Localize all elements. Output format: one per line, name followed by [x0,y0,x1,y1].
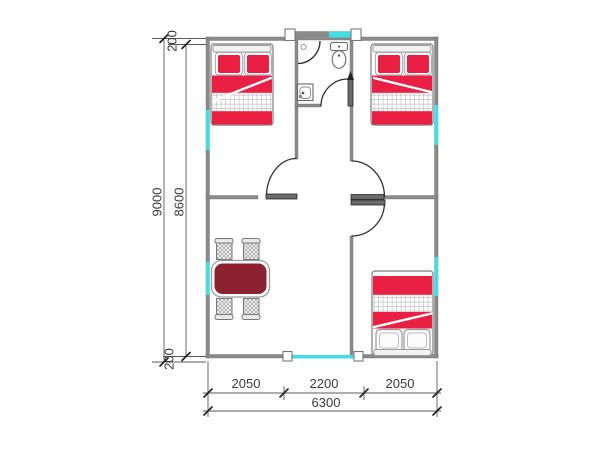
bed-bedroom1 [211,44,273,125]
bed-bedroom2 [371,44,433,125]
dining-set [212,239,270,320]
shower-head-icon [301,44,306,49]
chair-bottom-right [242,299,260,320]
chair-backrest [242,315,260,320]
sliding-door-bottom [292,355,354,359]
bed-sheet-band [372,93,432,111]
wall-bottom-left [206,355,283,359]
door-swing-arc [352,161,385,197]
door-swing-arc [267,159,297,197]
pillow-inner [378,55,400,73]
door-swing-arc [321,79,348,106]
dim-label-total-width: 6300 [312,395,341,410]
toilet-bowl-icon [332,51,346,69]
headboard [213,46,271,53]
door-bedroom2 [351,161,385,200]
door-leaf [348,79,353,106]
door-leaf [266,194,297,199]
chair-seat [217,299,233,316]
window-left-bedroom1 [206,110,210,150]
headboard [373,46,431,53]
chair-top-right [242,239,260,260]
window-right-bedroom3 [435,257,439,296]
door-leaf [351,195,384,200]
dim-label-top-offset: 200 [165,30,180,52]
wall-bathroom-bottom [295,104,321,107]
frame-bottom-left [283,352,292,362]
wall-hall-left [206,196,258,200]
shower-icon [298,41,320,64]
toilet-drain-icon [338,54,340,56]
frame-top-right [351,29,361,41]
wall-top-right [361,37,438,41]
headboard [374,350,431,356]
floor-plan-drawing: 9000 8600 200 200 2050 2200 2050 6300 [0,0,600,450]
toilet-button-icon [338,45,340,47]
dim-label-total-height: 9000 [150,188,165,217]
dim-label-segment-right: 2050 [386,376,415,391]
dimension-left: 9000 8600 200 200 [150,30,207,370]
door-swing-arc [352,203,385,237]
dining-table [215,264,267,295]
pillow-inner [407,55,429,73]
dimension-bottom: 2050 2200 2050 6300 [203,361,441,417]
chair-top-left [215,239,233,260]
bed-blanket-foot [373,276,432,295]
dim-label-inner-height: 8600 [172,188,187,217]
dim-label-segment-middle: 2200 [310,376,339,391]
bed-sheet-band [373,295,432,312]
dim-label-segment-left: 2050 [232,376,261,391]
bed-sheet-band [212,93,272,111]
bathroom-fixtures [298,41,348,101]
dim-label-bottom-offset: 200 [162,348,177,370]
door-bathroom [321,71,354,106]
pillow-inner [247,55,269,73]
window-right-bedroom2 [435,105,439,145]
chair-backrest [215,315,233,320]
chair-seat [244,243,260,260]
chair-seat [244,299,260,316]
window-left-dining [206,262,210,295]
bed-bedroom3 [372,271,433,356]
wash-basin-tap-icon [299,95,303,99]
wall-top-left [206,37,285,41]
floor-plan-canvas: 9000 8600 200 200 2050 2200 2050 6300 [0,0,600,450]
chair-seat [217,243,233,260]
wash-basin-drain-icon [302,92,305,95]
wall-hall-right [384,196,438,200]
door-bedroom3 [351,200,385,236]
door-leaf [351,200,385,205]
pillow-inner [218,55,240,73]
chair-bottom-left [215,299,233,320]
window-bathroom-top [329,32,351,38]
door-bedroom1 [266,159,297,200]
frame-top-left [285,29,295,41]
frame-bottom-right [354,352,363,362]
wall-bedroom3-west [350,236,353,355]
